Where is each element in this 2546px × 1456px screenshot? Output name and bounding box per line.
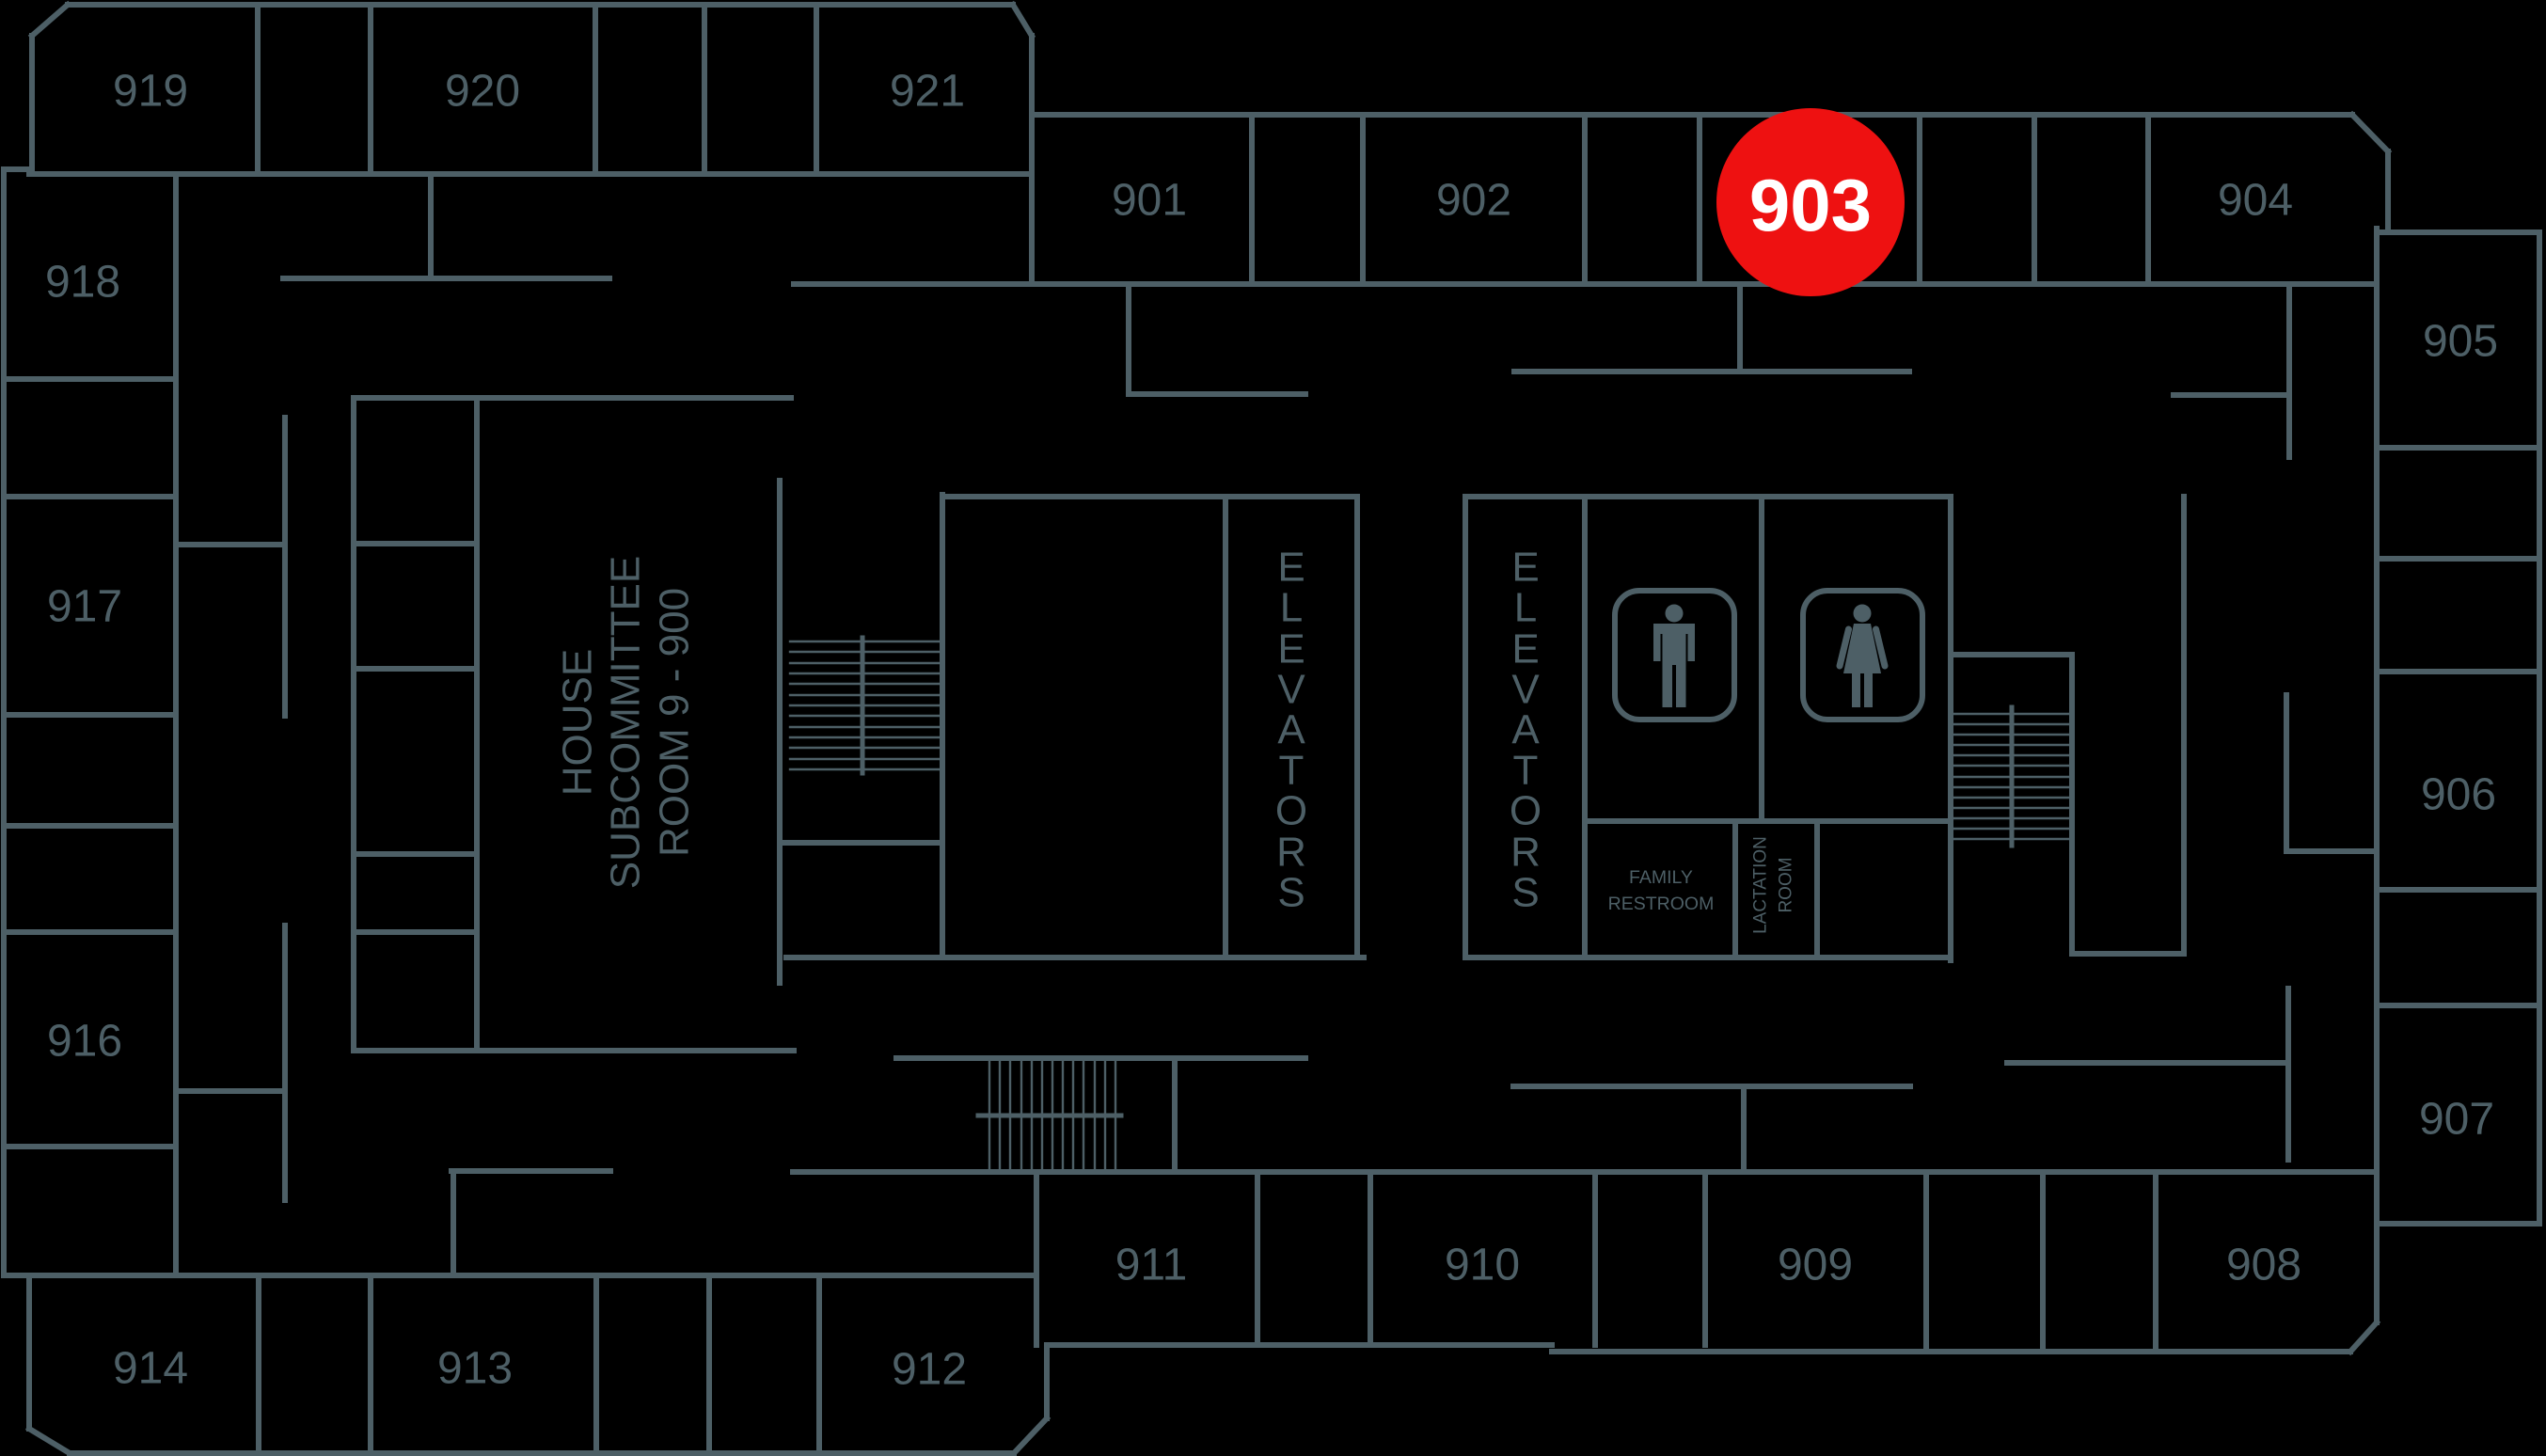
svg-text:ROOM 9 - 900: ROOM 9 - 900: [652, 588, 698, 857]
svg-text:R: R: [1510, 830, 1541, 876]
svg-text:S: S: [1511, 870, 1539, 916]
svg-text:911: 911: [1115, 1241, 1188, 1290]
svg-text:916: 916: [47, 1017, 122, 1067]
svg-text:V: V: [1511, 667, 1540, 713]
svg-text:919: 919: [113, 67, 188, 117]
svg-text:HOUSE: HOUSE: [555, 649, 601, 796]
svg-text:S: S: [1277, 870, 1305, 916]
svg-text:902: 902: [1436, 176, 1511, 226]
svg-text:918: 918: [45, 258, 120, 308]
svg-text:914: 914: [113, 1344, 188, 1394]
svg-text:E: E: [1277, 626, 1305, 673]
svg-text:LACTATION: LACTATION: [1751, 836, 1771, 934]
svg-text:910: 910: [1445, 1241, 1520, 1290]
svg-text:FAMILY: FAMILY: [1629, 867, 1693, 888]
svg-text:921: 921: [890, 67, 965, 117]
svg-text:T: T: [1513, 748, 1539, 794]
svg-text:L: L: [1280, 585, 1303, 631]
svg-text:904: 904: [2218, 176, 2293, 226]
svg-text:903: 903: [1749, 164, 1872, 246]
svg-text:906: 906: [2421, 770, 2496, 820]
svg-text:T: T: [1279, 748, 1305, 794]
svg-text:920: 920: [445, 67, 520, 117]
svg-text:ROOM: ROOM: [1777, 857, 1796, 912]
svg-text:E: E: [1277, 545, 1305, 591]
svg-text:SUBCOMMITTEE: SUBCOMMITTEE: [603, 556, 649, 889]
svg-text:A: A: [1277, 707, 1305, 753]
svg-text:R: R: [1276, 830, 1306, 876]
svg-text:908: 908: [2226, 1241, 2301, 1290]
svg-text:E: E: [1511, 545, 1539, 591]
svg-text:A: A: [1511, 707, 1540, 753]
svg-text:V: V: [1277, 667, 1305, 713]
svg-text:905: 905: [2423, 317, 2498, 367]
svg-text:O: O: [1275, 788, 1307, 834]
svg-text:909: 909: [1778, 1241, 1853, 1290]
svg-text:913: 913: [437, 1344, 513, 1394]
svg-text:O: O: [1510, 788, 1542, 834]
svg-text:901: 901: [1112, 176, 1187, 226]
svg-text:L: L: [1514, 585, 1537, 631]
svg-text:E: E: [1511, 626, 1539, 673]
svg-text:RESTROOM: RESTROOM: [1608, 894, 1715, 914]
svg-text:917: 917: [47, 582, 122, 632]
svg-text:907: 907: [2419, 1095, 2494, 1145]
svg-text:912: 912: [892, 1345, 967, 1395]
